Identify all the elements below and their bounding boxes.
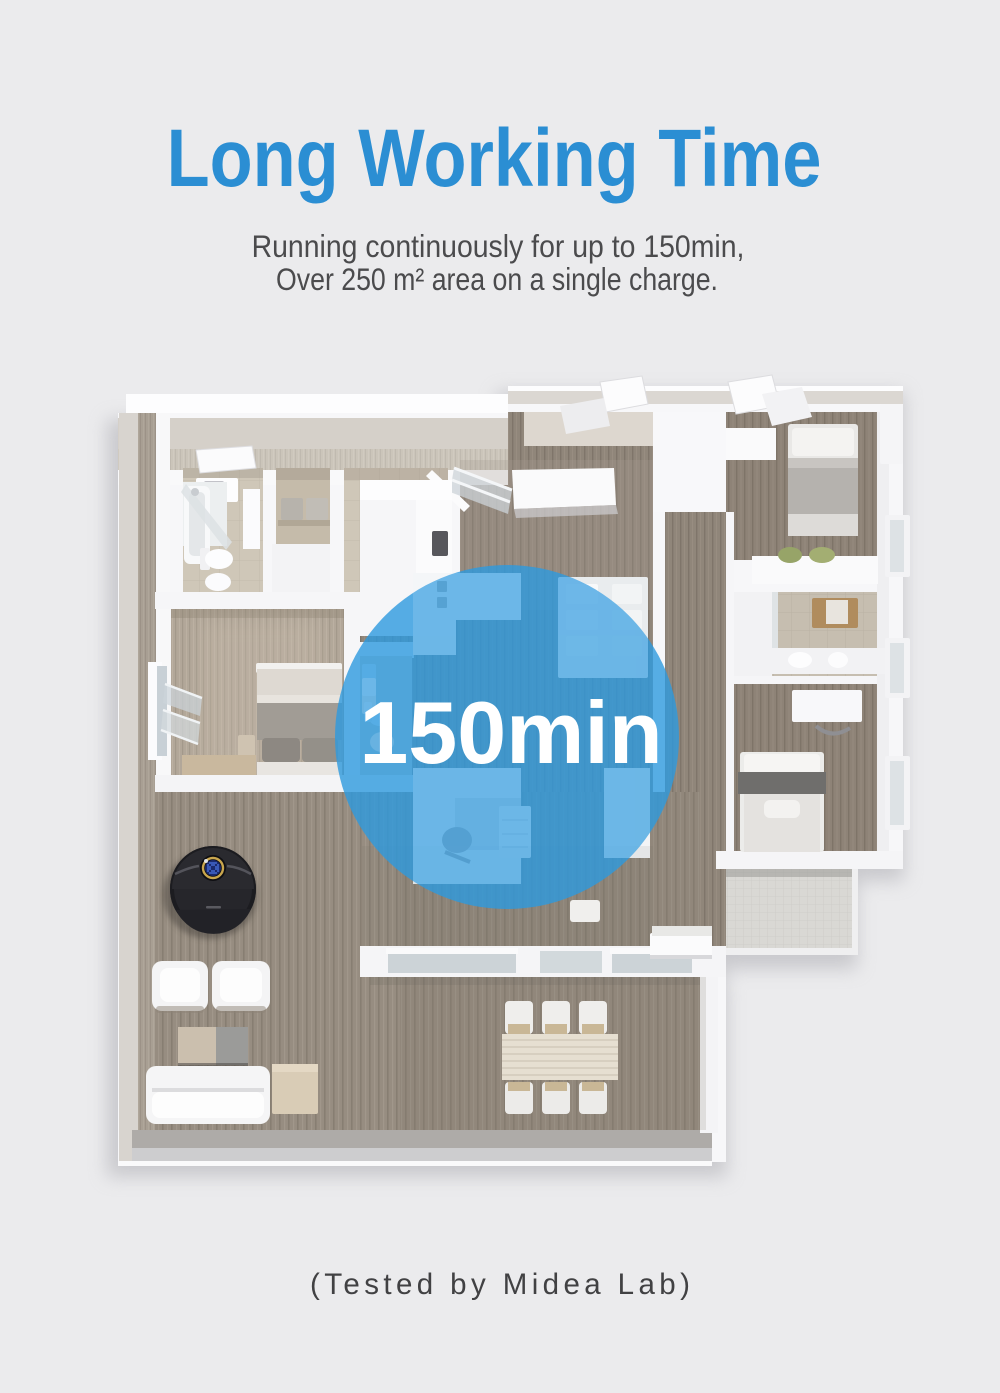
svg-text:150min: 150min — [359, 683, 662, 782]
